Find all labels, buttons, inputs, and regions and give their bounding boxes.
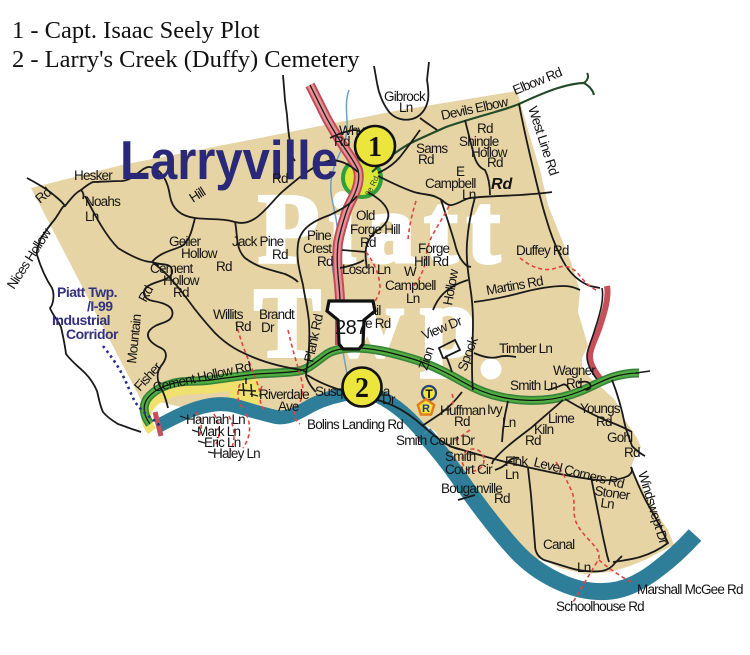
- svg-text:Schoolhouse Rd: Schoolhouse Rd: [556, 599, 644, 614]
- svg-text:Dr: Dr: [261, 320, 275, 335]
- svg-text:R: R: [422, 403, 430, 415]
- svg-text:2 - Larry's Creek (Duffy) Ceme: 2 - Larry's Creek (Duffy) Cemetery: [12, 46, 360, 73]
- svg-text:Hesker: Hesker: [74, 168, 113, 183]
- svg-text:Rd: Rd: [596, 414, 612, 429]
- svg-text:Canal: Canal: [543, 537, 575, 552]
- svg-text:Ln: Ln: [505, 467, 519, 482]
- svg-text:W: W: [404, 264, 417, 279]
- svg-text:Rd: Rd: [487, 155, 503, 170]
- svg-text:Old: Old: [356, 208, 375, 223]
- svg-text:Corridor: Corridor: [66, 326, 119, 342]
- svg-text:Rd: Rd: [418, 152, 434, 167]
- svg-text:Ln: Ln: [462, 187, 476, 202]
- svg-text:Haley Ln: Haley Ln: [213, 446, 260, 461]
- svg-text:Rd: Rd: [235, 319, 251, 334]
- svg-text:Duffey Rd: Duffey Rd: [516, 243, 569, 258]
- svg-text:Rd: Rd: [360, 235, 376, 250]
- svg-text:2: 2: [355, 373, 369, 404]
- svg-text:1: 1: [368, 132, 382, 163]
- svg-text:Rd: Rd: [566, 376, 582, 391]
- svg-text:Marshall McGee Rd: Marshall McGee Rd: [637, 582, 743, 597]
- svg-text:Losch Ln: Losch Ln: [342, 262, 391, 277]
- svg-text:Larryville: Larryville: [120, 129, 338, 191]
- svg-text:287: 287: [335, 317, 367, 339]
- svg-text:Noahs: Noahs: [85, 194, 121, 209]
- svg-text:Rd: Rd: [334, 134, 350, 149]
- svg-text:Ln: Ln: [577, 560, 591, 575]
- svg-text:Rd: Rd: [272, 171, 288, 186]
- svg-text:Rd: Rd: [454, 414, 470, 429]
- svg-text:Smith Court Dr: Smith Court Dr: [396, 433, 475, 448]
- svg-text:Rd: Rd: [216, 259, 232, 274]
- svg-text:Ln: Ln: [502, 415, 516, 430]
- svg-text:Smith Ln: Smith Ln: [510, 378, 557, 393]
- svg-text:Ivy: Ivy: [487, 402, 503, 417]
- svg-text:Rd: Rd: [624, 445, 640, 460]
- svg-text:Ln: Ln: [600, 495, 616, 512]
- svg-text:1 - Capt. Isaac Seely Plot: 1 - Capt. Isaac Seely Plot: [12, 17, 260, 44]
- svg-text:Rd: Rd: [525, 433, 541, 448]
- svg-text:Hill Rd: Hill Rd: [414, 254, 448, 269]
- svg-text:Dr: Dr: [382, 392, 396, 407]
- svg-text:Ave: Ave: [278, 399, 299, 414]
- svg-text:Ln: Ln: [399, 100, 413, 115]
- svg-text:Court Cir: Court Cir: [445, 462, 493, 477]
- svg-text:Ln: Ln: [406, 291, 420, 306]
- svg-text:Rd: Rd: [494, 491, 510, 506]
- svg-text:Rd: Rd: [173, 285, 189, 300]
- svg-text:Timber Ln: Timber Ln: [499, 341, 552, 356]
- svg-text:Ln: Ln: [85, 209, 99, 224]
- svg-text:Rd: Rd: [272, 247, 288, 262]
- svg-text:Bolins Landing Rd: Bolins Landing Rd: [307, 417, 403, 432]
- svg-text:Rd: Rd: [317, 254, 333, 269]
- svg-text:Rd: Rd: [491, 176, 514, 193]
- svg-text:Gohl: Gohl: [607, 430, 633, 445]
- svg-text:Hollow: Hollow: [181, 246, 218, 261]
